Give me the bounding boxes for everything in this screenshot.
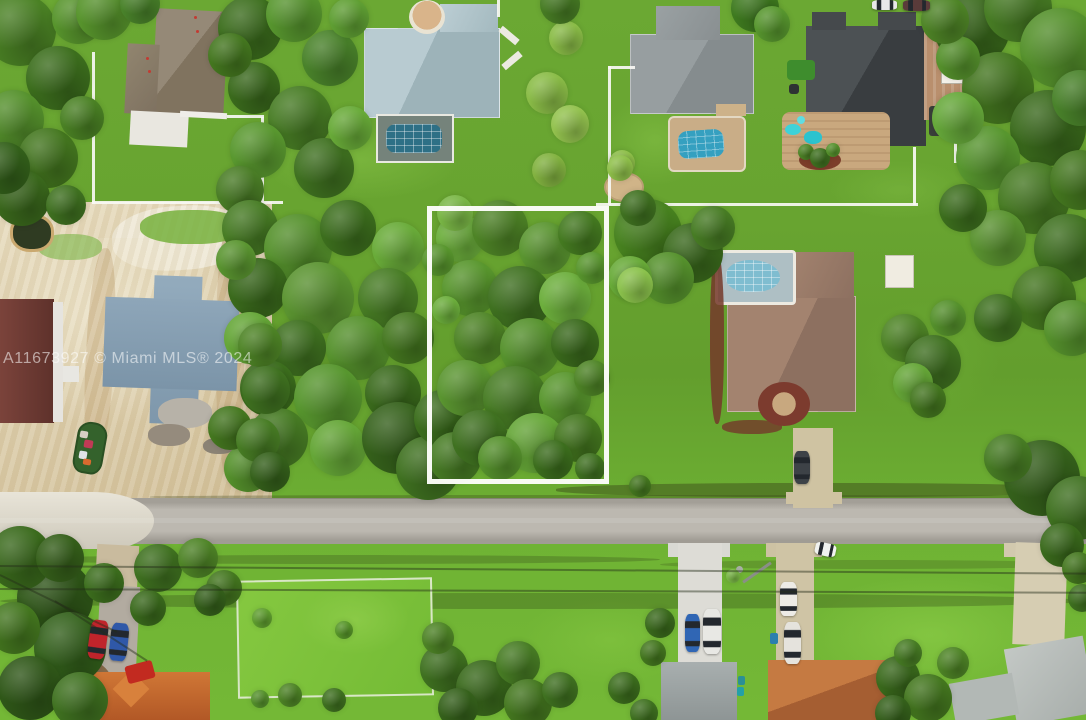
tree — [250, 452, 290, 492]
tree — [60, 96, 104, 140]
pool-float — [797, 116, 805, 124]
tree — [826, 143, 840, 157]
tree — [422, 622, 454, 654]
car-white-top-edge — [872, 0, 897, 10]
property-boundary-outline — [427, 206, 609, 484]
car-dark-top-edge — [903, 0, 930, 11]
mls-watermark: A11673927 © Miami MLS® 2024 — [3, 350, 252, 368]
tree — [130, 590, 166, 626]
tree — [134, 544, 182, 592]
tree — [320, 200, 376, 256]
tree — [640, 640, 666, 666]
house-a-roof-wing — [124, 43, 160, 115]
house-d-grill — [789, 84, 799, 94]
tree — [216, 240, 256, 280]
tree — [1044, 300, 1086, 356]
tree — [0, 656, 62, 720]
tree — [242, 366, 290, 414]
tree — [910, 382, 946, 418]
tree — [937, 647, 969, 679]
tree — [252, 608, 272, 628]
house-d-roof-tab — [812, 12, 846, 30]
tree — [645, 608, 675, 638]
house-c-wall — [716, 104, 746, 116]
tree — [52, 672, 108, 720]
tree — [542, 672, 578, 708]
car-blue-2 — [685, 614, 700, 652]
tree — [310, 420, 366, 476]
tree — [36, 534, 84, 582]
pool-c — [677, 128, 725, 159]
tree — [630, 699, 658, 720]
house-f-roof-wing — [102, 297, 239, 392]
tree — [532, 153, 566, 187]
house-a-roof-vent — [148, 70, 151, 73]
house-c-roof — [630, 34, 754, 114]
house-j-roof — [661, 662, 737, 720]
house-c-roof-upper — [656, 6, 720, 40]
tree — [932, 92, 984, 144]
car-white-2 — [780, 582, 797, 616]
car-white-3 — [784, 622, 801, 664]
tree — [46, 185, 86, 225]
pool-float — [785, 124, 801, 135]
tree — [322, 688, 346, 712]
fence-line — [608, 66, 611, 205]
tree — [540, 0, 580, 24]
fence-line — [497, 0, 500, 17]
trash-bin — [738, 676, 745, 685]
house-b-rotunda — [409, 0, 445, 34]
tree — [939, 184, 987, 232]
fence-line — [608, 66, 635, 69]
tree — [496, 641, 540, 685]
tree — [984, 434, 1032, 482]
house-e-mulch — [710, 252, 724, 424]
house-b-wing-wall — [501, 51, 522, 71]
tree — [84, 563, 124, 603]
tree — [208, 33, 252, 77]
tree — [930, 300, 966, 336]
tree — [438, 688, 478, 720]
tree — [1068, 584, 1086, 612]
tree — [372, 222, 424, 274]
pool-float — [804, 131, 822, 144]
house-i-roof — [768, 660, 890, 720]
tree — [904, 674, 952, 720]
fenced-field-patch — [300, 585, 410, 655]
tree — [328, 106, 372, 150]
tree — [607, 155, 633, 181]
boat-cargo — [83, 458, 92, 465]
fence-line — [227, 115, 264, 118]
driveway-house-e-flare — [786, 492, 842, 504]
aerial-photo: A11673927 © Miami MLS® 2024 — [0, 0, 1086, 720]
tree — [608, 672, 640, 704]
house-b-roof-upper — [440, 4, 498, 32]
trash-bin — [770, 633, 778, 644]
tree — [617, 267, 653, 303]
house-d-roof-tab — [878, 12, 916, 30]
house-a-roof-vent — [146, 57, 149, 60]
tree — [329, 0, 369, 38]
pool-b — [386, 124, 442, 153]
road-top-shadow — [150, 495, 1086, 499]
tree — [178, 538, 218, 578]
tree — [754, 6, 790, 42]
house-e-shed — [885, 255, 914, 288]
house-b-wing-wall — [498, 26, 519, 46]
tree — [691, 206, 735, 250]
tree — [974, 294, 1022, 342]
car-white-1 — [703, 609, 721, 654]
pool-e — [726, 260, 780, 292]
tree — [251, 690, 269, 708]
tree — [549, 21, 583, 55]
tree — [629, 475, 651, 497]
trash-bin — [737, 687, 744, 696]
boat-cargo — [83, 439, 93, 448]
tree — [1062, 552, 1086, 584]
house-e-courtyard — [758, 382, 810, 426]
tree — [335, 621, 353, 639]
fence-line — [913, 147, 916, 205]
house-a-roof-vent — [194, 16, 197, 19]
tree — [278, 683, 302, 707]
debris-pile — [148, 424, 190, 446]
house-a-roof-vent — [196, 30, 199, 33]
tree — [620, 190, 656, 226]
house-e-roof-upper — [789, 252, 854, 298]
tree — [894, 639, 922, 667]
house-d-turf — [787, 60, 815, 80]
tree — [551, 105, 589, 143]
tree — [302, 30, 358, 86]
car-dark — [794, 451, 810, 484]
house-b-roof — [364, 28, 500, 118]
road-center-seam — [0, 518, 1086, 523]
boat-cargo — [79, 430, 88, 438]
